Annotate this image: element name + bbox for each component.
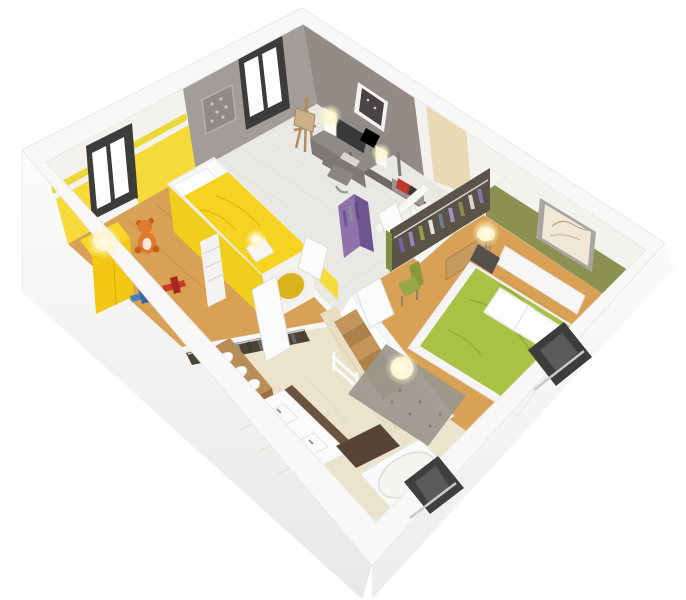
glow-ball-lamp [385, 351, 419, 385]
floor-plan-render [0, 0, 686, 600]
glow-office-lamp-left [318, 104, 342, 128]
glow-kids-nightstand [245, 229, 267, 251]
wardrobe-end-panel-green [386, 230, 392, 272]
floor-plan-svg [0, 0, 686, 600]
glow-bedroom-nightstand [472, 219, 500, 247]
glow-office-lamp-right [371, 143, 391, 163]
glow-kids-cabinet-lamp [87, 225, 121, 259]
